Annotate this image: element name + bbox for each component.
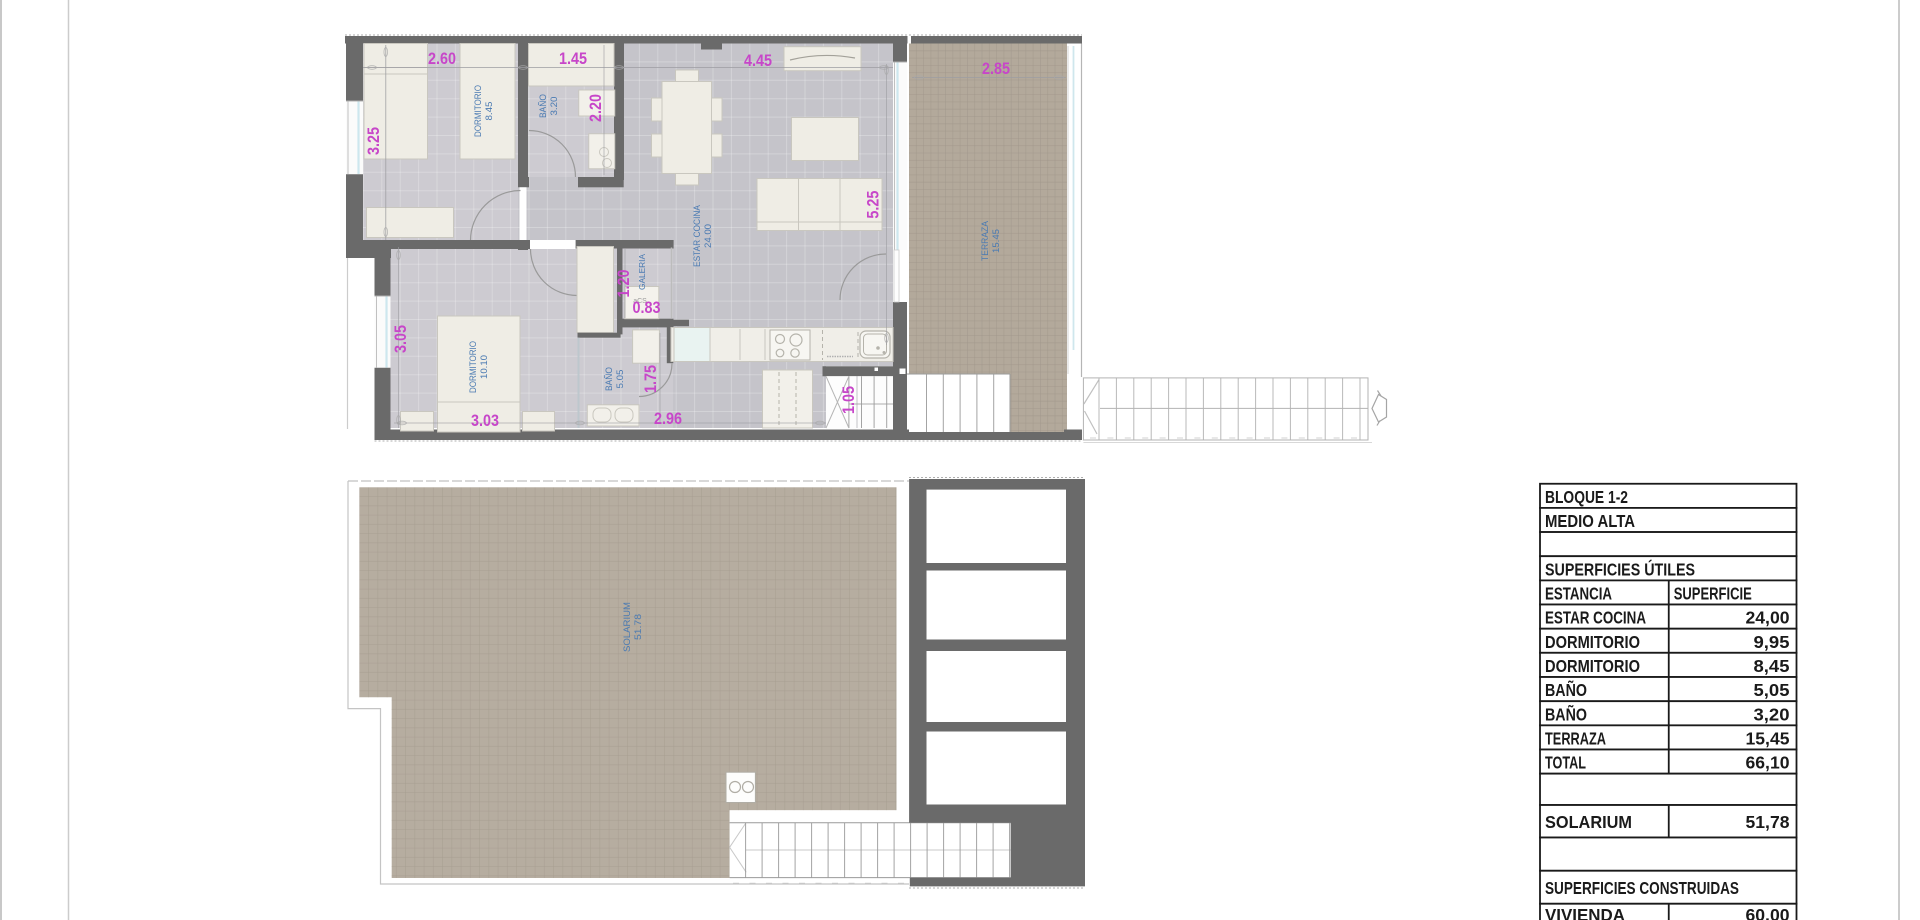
svg-text:51.78: 51.78 — [633, 614, 643, 640]
svg-text:BAÑO: BAÑO — [1545, 679, 1587, 700]
svg-text:SUPERFICIE: SUPERFICIE — [1674, 584, 1752, 604]
svg-text:DORMITORIO: DORMITORIO — [473, 85, 483, 137]
svg-text:9,95: 9,95 — [1754, 632, 1790, 652]
svg-text:3.05: 3.05 — [392, 325, 410, 353]
svg-text:ESTAR COCINA: ESTAR COCINA — [692, 205, 702, 267]
svg-text:TOTAL: TOTAL — [1545, 753, 1586, 773]
svg-text:1.75: 1.75 — [642, 365, 660, 393]
svg-text:5,05: 5,05 — [1754, 680, 1790, 700]
svg-text:BAÑO: BAÑO — [538, 94, 548, 118]
svg-text:10.10: 10.10 — [479, 355, 489, 379]
svg-text:SOLARIUM: SOLARIUM — [622, 602, 632, 652]
svg-text:15.45: 15.45 — [991, 229, 1001, 253]
svg-text:ESTANCIA: ESTANCIA — [1545, 584, 1612, 604]
svg-text:DORMITORIO: DORMITORIO — [1545, 632, 1640, 652]
svg-text:BAÑO: BAÑO — [1545, 703, 1587, 724]
svg-text:4.45: 4.45 — [744, 52, 772, 70]
svg-text:24.00: 24.00 — [703, 224, 713, 248]
svg-text:2.85: 2.85 — [982, 60, 1010, 78]
svg-text:2.20: 2.20 — [587, 94, 605, 122]
svg-text:1.45: 1.45 — [559, 50, 587, 68]
svg-text:66,10: 66,10 — [1746, 753, 1790, 773]
svg-text:SOLARIUM: SOLARIUM — [1545, 812, 1632, 832]
svg-text:GALERIA: GALERIA — [637, 254, 647, 290]
svg-text:8,45: 8,45 — [1754, 656, 1790, 676]
svg-text:SUPERFICIES ÚTILES: SUPERFICIES ÚTILES — [1545, 558, 1695, 579]
svg-text:3.25: 3.25 — [365, 127, 383, 155]
svg-text:5.05: 5.05 — [615, 370, 625, 389]
svg-text:MEDIO ALTA: MEDIO ALTA — [1545, 511, 1635, 531]
svg-text:VIVIENDA: VIVIENDA — [1545, 905, 1625, 920]
svg-text:1.20: 1.20 — [615, 270, 633, 298]
svg-text:ESTAR COCINA: ESTAR COCINA — [1545, 608, 1646, 628]
svg-text:DORMITORIO: DORMITORIO — [468, 341, 478, 393]
svg-text:8.45: 8.45 — [484, 102, 494, 121]
svg-text:51,78: 51,78 — [1746, 812, 1790, 832]
svg-text:3,20: 3,20 — [1754, 704, 1790, 724]
svg-text:15,45: 15,45 — [1746, 728, 1790, 748]
svg-text:1.05: 1.05 — [840, 386, 858, 414]
svg-text:BAÑO: BAÑO — [604, 367, 614, 391]
svg-text:TERRAZA: TERRAZA — [980, 221, 990, 261]
svg-text:60,00: 60,00 — [1746, 905, 1790, 920]
svg-text:3.03: 3.03 — [471, 412, 499, 430]
svg-text:SUPERFICIES CONSTRUIDAS: SUPERFICIES CONSTRUIDAS — [1545, 878, 1739, 898]
svg-text:BLOQUE 1-2: BLOQUE 1-2 — [1545, 487, 1628, 507]
svg-text:2.60: 2.60 — [428, 50, 456, 68]
svg-text:DORMITORIO: DORMITORIO — [1545, 656, 1640, 676]
svg-text:5.25: 5.25 — [865, 191, 883, 219]
svg-text:24,00: 24,00 — [1746, 608, 1790, 628]
svg-text:3.20: 3.20 — [549, 97, 559, 116]
svg-text:TERRAZA: TERRAZA — [1545, 728, 1606, 748]
svg-text:2.96: 2.96 — [654, 410, 682, 428]
svg-text:0.83: 0.83 — [633, 299, 661, 317]
